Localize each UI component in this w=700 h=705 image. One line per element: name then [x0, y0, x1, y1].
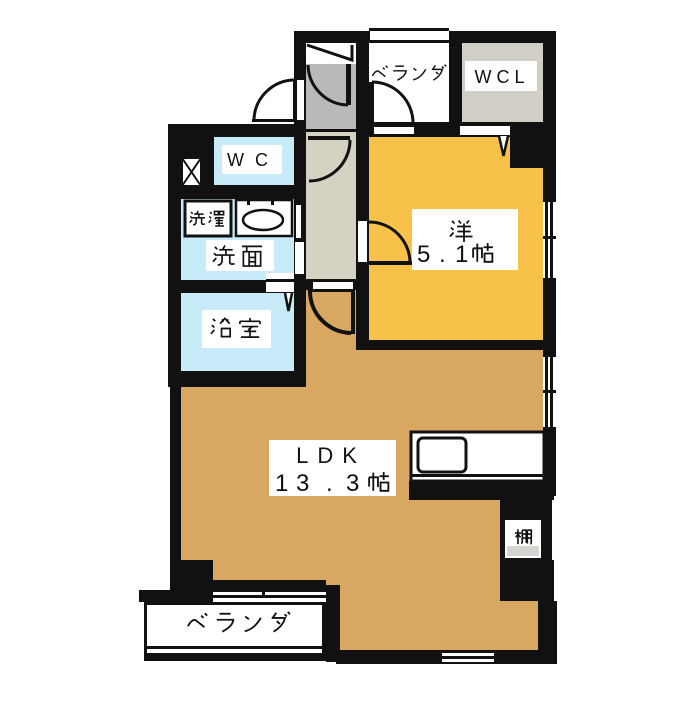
svg-text:.: .: [439, 241, 446, 268]
svg-text:3: 3: [346, 470, 359, 497]
svg-text:1: 1: [275, 470, 288, 497]
svg-text:1: 1: [455, 241, 468, 268]
svg-text:WC: WC: [227, 150, 279, 170]
svg-text:LDK: LDK: [296, 443, 366, 468]
svg-text:.: .: [326, 470, 333, 497]
svg-text:3: 3: [296, 470, 309, 497]
svg-text:WCL: WCL: [475, 67, 530, 87]
svg-text:5: 5: [417, 241, 430, 268]
